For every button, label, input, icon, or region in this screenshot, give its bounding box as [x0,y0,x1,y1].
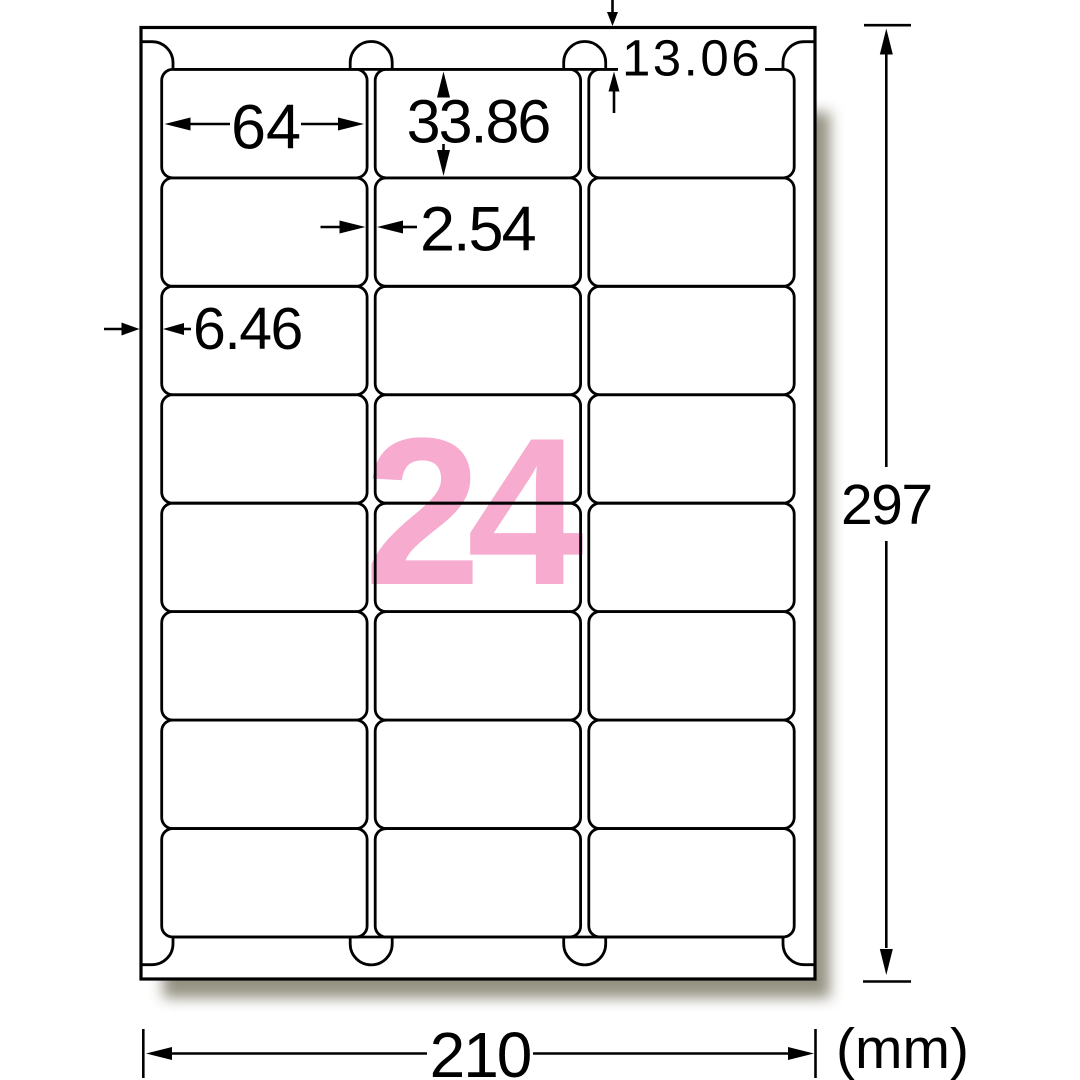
svg-text:64: 64 [231,93,301,163]
svg-text:297: 297 [841,473,932,537]
svg-text:33.86: 33.86 [407,88,550,156]
svg-text:6.46: 6.46 [193,296,302,362]
svg-text:13.06: 13.06 [622,30,762,87]
svg-text:(mm): (mm) [836,1017,969,1080]
svg-text:24: 24 [364,394,583,629]
svg-text:210: 210 [430,1019,531,1080]
svg-text:2.54: 2.54 [420,195,536,265]
